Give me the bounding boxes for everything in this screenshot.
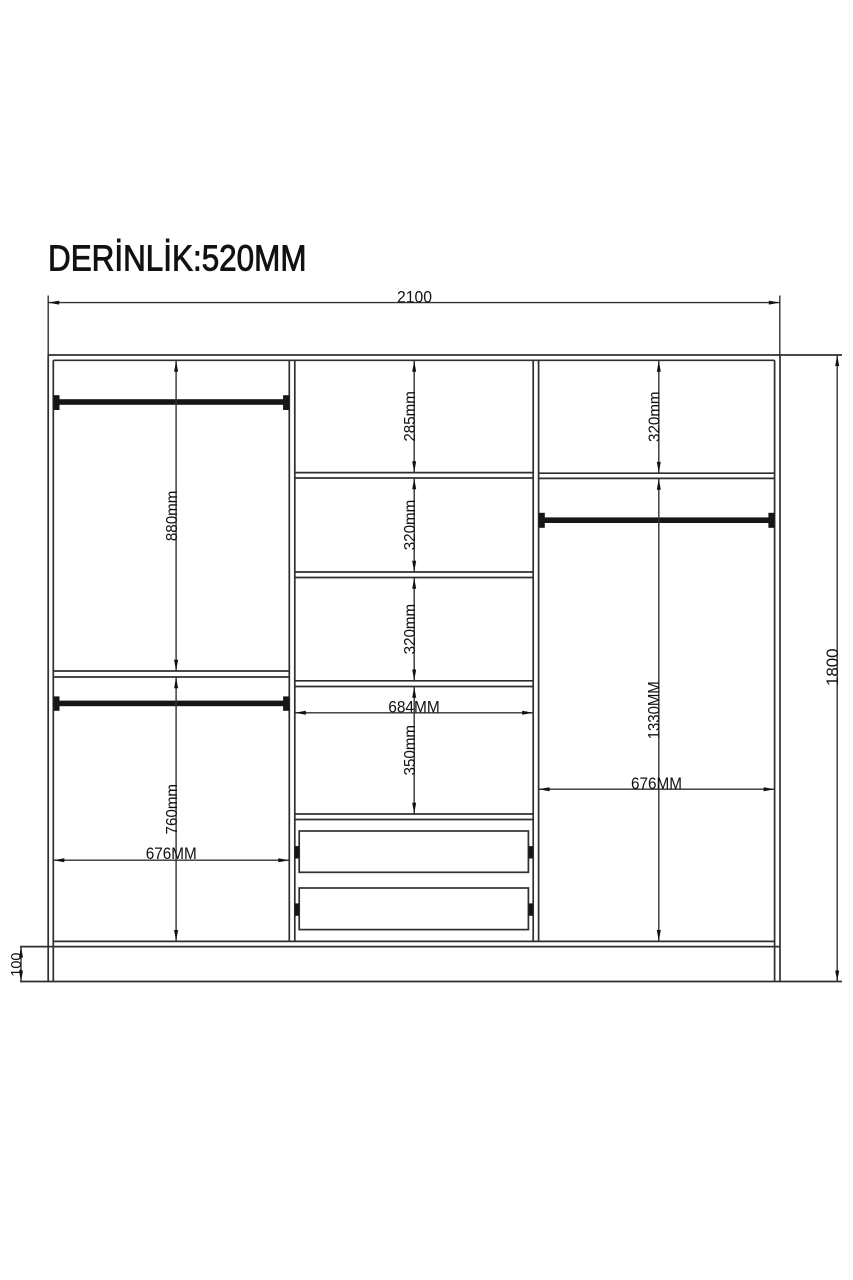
svg-text:1800: 1800 <box>824 649 842 687</box>
svg-text:1330MM: 1330MM <box>646 681 664 739</box>
svg-text:320mm: 320mm <box>402 604 419 655</box>
svg-text:676MM: 676MM <box>146 845 197 863</box>
svg-text:320mm: 320mm <box>402 500 419 551</box>
svg-text:676MM: 676MM <box>631 775 682 793</box>
svg-text:350mm: 350mm <box>402 725 419 776</box>
svg-text:320mm: 320mm <box>647 391 664 442</box>
svg-text:2100: 2100 <box>397 288 432 306</box>
svg-text:880mm: 880mm <box>164 491 181 542</box>
svg-text:285mm: 285mm <box>402 391 419 442</box>
svg-text:100: 100 <box>9 953 25 977</box>
svg-text:760mm: 760mm <box>164 784 181 835</box>
svg-text:684MM: 684MM <box>388 699 440 717</box>
svg-text:DERİNLİK:520MM: DERİNLİK:520MM <box>48 238 307 279</box>
